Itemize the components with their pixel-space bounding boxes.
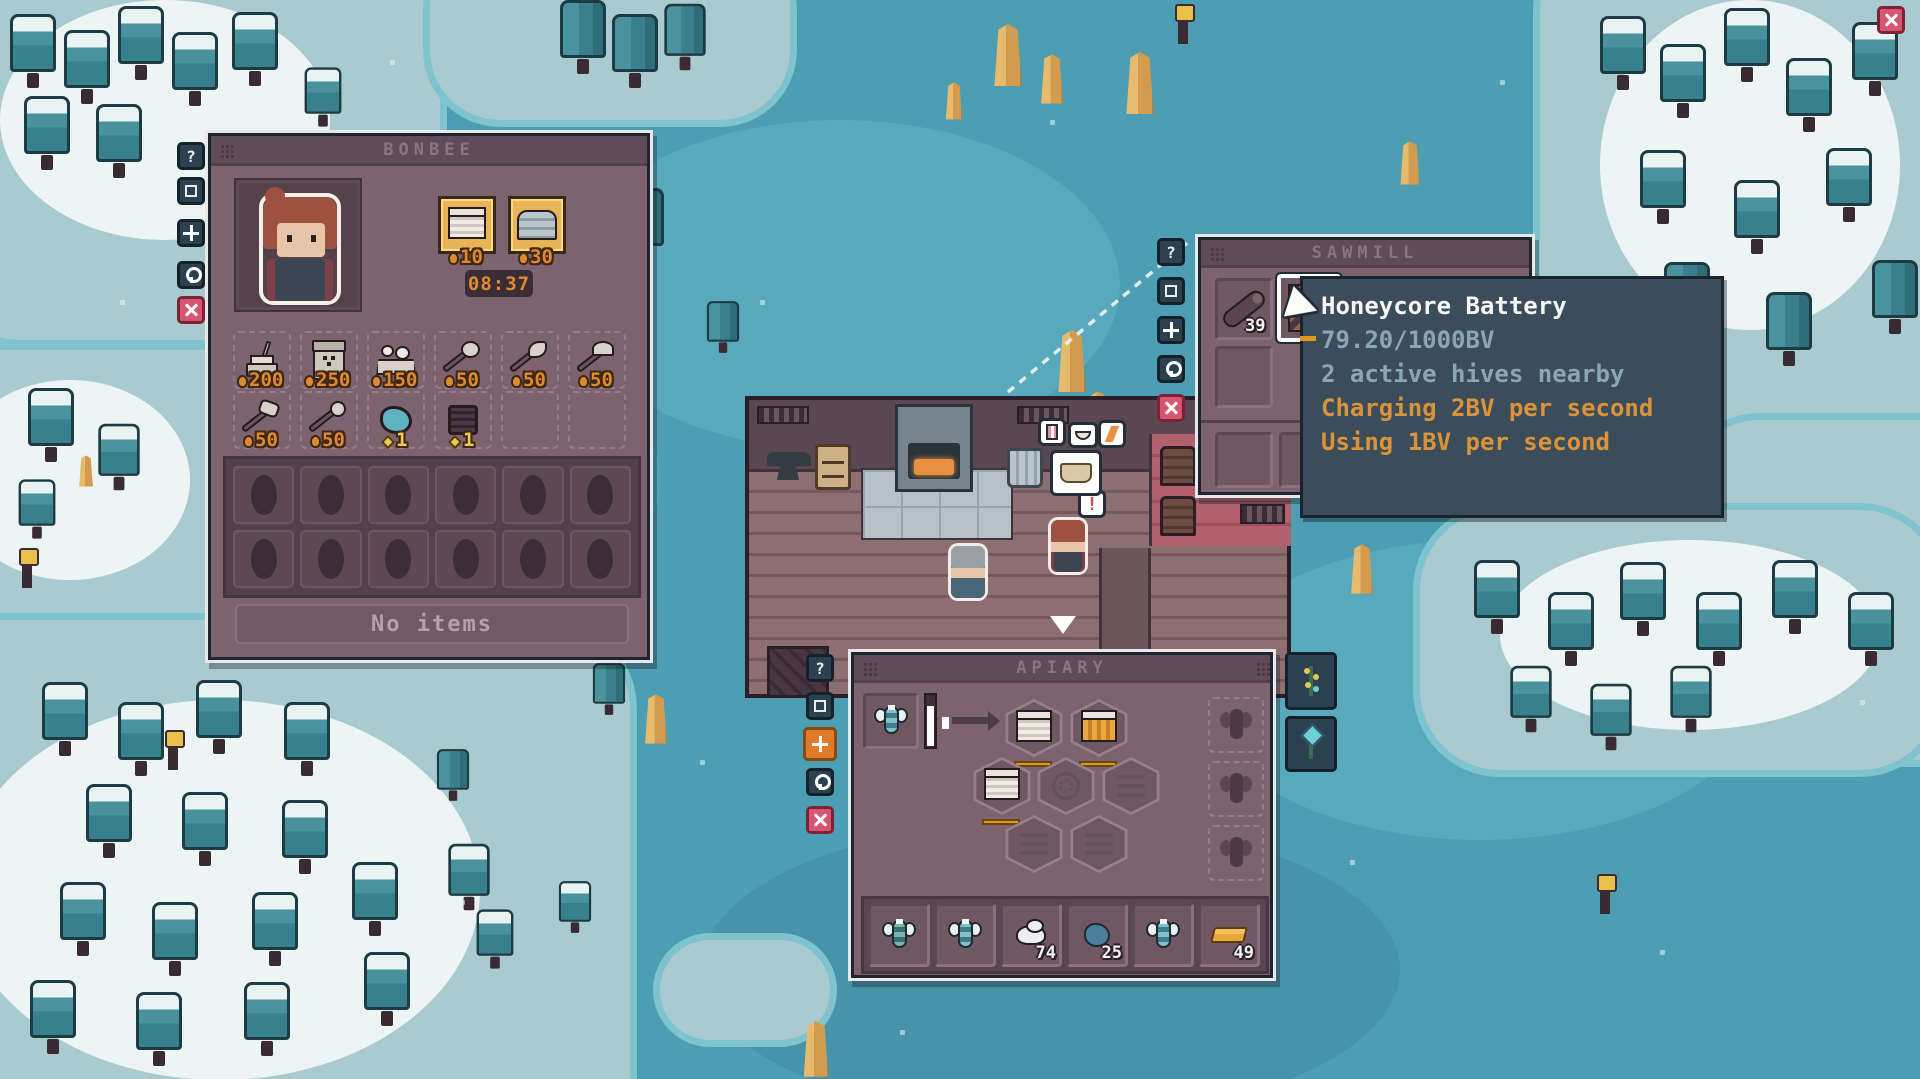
tree-trunk (1865, 651, 1877, 666)
bee-storage-slot[interactable] (233, 466, 294, 524)
tree-trunk (27, 73, 39, 88)
tree-crown (284, 702, 330, 760)
help-icon: ? (186, 147, 196, 166)
tree-trunk (605, 704, 613, 715)
apiary-resize-button[interactable] (806, 692, 834, 720)
tree-trunk (1789, 619, 1801, 634)
player-move-button[interactable] (177, 219, 205, 247)
shop-item-hammer[interactable]: 50 (233, 391, 291, 449)
move-icon (1163, 322, 1179, 338)
player-panel-title: BONBEE (383, 140, 474, 160)
tree-crown (60, 882, 106, 940)
progress-tick (942, 717, 949, 729)
tree-trunk (261, 1041, 273, 1056)
tree (118, 6, 164, 80)
tree-crown (448, 844, 489, 896)
tree-trunk (59, 741, 71, 756)
sawmill-close-button[interactable] (1157, 394, 1185, 422)
tree-crown (1872, 260, 1918, 318)
tree-crown (612, 14, 658, 72)
sawmill-help-button[interactable]: ? (1157, 238, 1185, 266)
tree-trunk (1889, 319, 1901, 334)
item-price: 50 (444, 369, 479, 391)
move-icon (183, 225, 199, 241)
resize-icon (814, 700, 826, 712)
tree (664, 4, 705, 71)
product-slot-ingot[interactable]: 49 (1198, 903, 1260, 967)
tree-crown (196, 680, 242, 738)
wall-vent (1240, 504, 1285, 524)
empty-bee-shape (587, 539, 613, 579)
pin-icon (185, 267, 197, 283)
npc-body (951, 578, 985, 598)
tree-trunk (1526, 719, 1537, 733)
tree-crown (182, 792, 228, 850)
tooltip-charging: Charging 2BV per second (1321, 391, 1657, 425)
tree (437, 749, 469, 801)
tree-trunk (680, 57, 691, 71)
hive-frame-icon (448, 211, 486, 239)
land-island (660, 940, 830, 1040)
sawmill-move-button[interactable] (1157, 316, 1185, 344)
shop-item-churn[interactable]: 200 (233, 331, 291, 389)
tree (1826, 148, 1872, 222)
grey-jug (1007, 448, 1043, 488)
shop-item-canister[interactable]: 250 (300, 331, 358, 389)
arrow-head (988, 711, 1000, 731)
apiary-help-button[interactable]: ? (806, 654, 834, 682)
game-screen: ! BONBEE (0, 0, 1920, 1079)
close-icon (1164, 401, 1178, 415)
queen-bee-icon (874, 704, 908, 738)
beehive (1160, 496, 1196, 536)
apiary-move-button-active[interactable] (803, 727, 837, 761)
tree-trunk (719, 342, 727, 353)
tree-trunk (1741, 67, 1753, 82)
product-count: 25 (1102, 943, 1122, 963)
tree-crown (232, 12, 278, 70)
tree-trunk (301, 761, 313, 776)
bee-storage-slot[interactable] (570, 466, 631, 524)
rock-spire (1036, 54, 1068, 104)
bee-storage-slot[interactable] (502, 466, 563, 524)
item-price: 50 (310, 429, 345, 451)
empty-bee-shape (453, 475, 479, 515)
bee-storage-slot[interactable] (368, 530, 429, 588)
lantern (168, 742, 178, 770)
tree-trunk (369, 921, 381, 936)
tree (1786, 58, 1832, 132)
tree-trunk (1617, 75, 1629, 90)
queen-bee-icon (1146, 918, 1180, 952)
tree (252, 892, 298, 966)
shop-item-empty[interactable] (568, 391, 626, 449)
tree-trunk (1843, 207, 1855, 222)
tree (448, 844, 489, 911)
apiary-bee-slot[interactable] (1208, 697, 1264, 753)
tree (1848, 592, 1894, 666)
no-items-bar: No items (235, 604, 629, 644)
anvil (767, 452, 811, 466)
tree-trunk (1657, 209, 1669, 224)
tree-crown (64, 30, 110, 88)
apiary-title-bar: APIARY (854, 655, 1270, 683)
close-icon (813, 813, 827, 827)
sawmill-output-slot[interactable] (1215, 432, 1273, 488)
item-price: 50 (243, 429, 278, 451)
tree-trunk (449, 790, 457, 801)
tree (118, 702, 164, 776)
tree-crown (1590, 684, 1631, 736)
tree-crown (244, 982, 290, 1040)
tree-trunk (1565, 651, 1577, 666)
sawmill-title-bar: SAWMILL (1201, 240, 1529, 268)
product-count: 74 (1036, 943, 1056, 963)
sparkle (900, 1030, 905, 1035)
shop-item-egg-crate[interactable]: 150 (367, 331, 425, 389)
rock-spire (942, 82, 966, 119)
tree-crown (1600, 16, 1646, 74)
sparkle (1720, 560, 1725, 565)
tree-trunk (47, 1039, 59, 1054)
tree-crown (1640, 150, 1686, 208)
sparkle (1860, 700, 1865, 705)
tree-trunk (629, 73, 641, 88)
bee-storage-slot[interactable] (570, 530, 631, 588)
tree-crown (152, 902, 198, 960)
tree-crown (172, 32, 218, 90)
tree (30, 980, 76, 1054)
apiary-plant-button[interactable] (1285, 652, 1337, 710)
tree-trunk (114, 477, 125, 491)
tree-crown (477, 909, 514, 955)
tree (24, 96, 70, 170)
tree-crown (352, 862, 398, 920)
tree-crown (10, 14, 56, 72)
shop-item-net[interactable]: 1 (434, 391, 492, 449)
tree-crown (30, 980, 76, 1038)
tree-trunk (464, 897, 475, 911)
tree (10, 14, 56, 88)
tree-crown (42, 682, 88, 740)
tree-crown (1510, 666, 1551, 718)
tree (1600, 16, 1646, 90)
product-slot-bee[interactable] (868, 903, 930, 967)
bee-storage-slot[interactable] (502, 530, 563, 588)
full-frame-icon (1081, 714, 1117, 742)
tree-trunk (249, 71, 261, 86)
player-hair (1051, 520, 1085, 542)
tree-crown (593, 663, 625, 704)
speech-bubble-basket (1050, 450, 1102, 496)
bee-storage-slot[interactable] (300, 466, 361, 524)
apiary-bee-slot[interactable] (1208, 761, 1264, 817)
tree-crown (1474, 560, 1520, 618)
tree-crown (1696, 592, 1742, 650)
empty-bee-shape (251, 539, 277, 579)
tree-trunk (135, 65, 147, 80)
log-count: 39 (1245, 316, 1265, 336)
tree (172, 32, 218, 106)
title-dots (864, 663, 867, 666)
empty-bee-shape (318, 539, 344, 579)
tree-crown (1848, 592, 1894, 650)
lantern (1178, 16, 1188, 44)
sawmill-pin-button[interactable] (1157, 355, 1185, 383)
tree-crown (664, 4, 705, 56)
tree (1660, 44, 1706, 118)
tree (136, 992, 182, 1066)
tree-crown (118, 6, 164, 64)
list-icon (1020, 833, 1048, 855)
bee-silhouette-icon (1219, 771, 1253, 807)
title-dots (1211, 248, 1214, 251)
tree-trunk (113, 163, 125, 178)
tree (1696, 592, 1742, 666)
sparkle (760, 300, 765, 305)
player-help-button[interactable]: ? (177, 142, 205, 170)
tree (612, 14, 658, 88)
tree (1872, 260, 1918, 334)
tree-trunk (169, 961, 181, 976)
apiary-title: APIARY (1016, 658, 1107, 678)
empty-bee-shape (385, 539, 411, 579)
npc-face (951, 568, 985, 578)
wax-powder-icon (1016, 925, 1046, 945)
lantern (22, 560, 32, 588)
tree-crown (1766, 292, 1812, 350)
tree-trunk (318, 115, 328, 127)
pin-icon (1165, 361, 1177, 377)
tree-trunk (135, 761, 147, 776)
player-pin-button[interactable] (177, 261, 205, 289)
tree (707, 301, 739, 353)
basket-icon (1060, 463, 1092, 483)
tree-crown (86, 784, 132, 842)
player-inventory-panel: BONBEE 10 30 08:37 200 (208, 133, 650, 660)
screen-close-button[interactable] (1877, 6, 1905, 34)
tree-crown (28, 388, 74, 446)
tree-crown (305, 67, 342, 113)
tree (1620, 562, 1666, 636)
tree-crown (24, 96, 70, 154)
speech-bubble-bolt (1098, 420, 1126, 448)
coin-icon (448, 252, 459, 265)
player-close-button[interactable] (177, 296, 205, 324)
product-slot-bee[interactable] (934, 903, 996, 967)
tree-trunk (1686, 719, 1697, 733)
apiary-frame-slot-1[interactable] (1003, 699, 1065, 757)
sparkle (1660, 950, 1665, 955)
bee-storage-slot[interactable] (435, 530, 496, 588)
tree (232, 12, 278, 86)
tree-crown (98, 424, 139, 476)
bolt-icon (1105, 426, 1119, 442)
tree (60, 882, 106, 956)
npc-hair (951, 546, 985, 568)
tree-trunk (571, 922, 579, 933)
tree (86, 784, 132, 858)
apiary-bee-slot[interactable] (1208, 825, 1264, 881)
item-price: 50 (578, 369, 613, 391)
item-price: 250 (304, 369, 350, 391)
wall-vent (757, 406, 809, 424)
bee-storage-slot[interactable] (300, 530, 361, 588)
speech-bubble-carton (1038, 418, 1066, 446)
shop-item-blue-wax[interactable]: 1 (367, 391, 425, 449)
product-slot-powder[interactable]: 74 (1000, 903, 1062, 967)
sawmill-title: SAWMILL (1312, 243, 1419, 263)
tree-trunk (1783, 351, 1795, 366)
tree-trunk (213, 739, 225, 754)
tree-trunk (41, 155, 53, 170)
tree (1734, 180, 1780, 254)
apiary-queen-slot[interactable] (863, 693, 919, 749)
tree (1548, 592, 1594, 666)
portrait-eyes (287, 235, 292, 242)
tree-trunk (577, 59, 589, 74)
item-tooltip: Honeycore Battery 79.20/1000BV 2 active … (1300, 276, 1724, 518)
tree-crown (1772, 560, 1818, 618)
item-price: 50 (511, 369, 546, 391)
tree-trunk (269, 951, 281, 966)
tree-trunk (1751, 239, 1763, 254)
product-count: 49 (1234, 943, 1254, 963)
tree (1724, 8, 1770, 82)
tree-trunk (32, 527, 42, 539)
apiary-flower-button[interactable] (1285, 716, 1337, 772)
bee-storage-slot[interactable] (233, 530, 294, 588)
apiary-locked-slot (1068, 815, 1130, 873)
title-dots (1257, 663, 1260, 666)
bowl-icon (1075, 431, 1091, 440)
tree (64, 30, 110, 104)
player-resize-button[interactable] (177, 177, 205, 205)
tree (559, 881, 591, 933)
exclaim-icon: ! (1087, 494, 1098, 515)
tree-trunk (1637, 621, 1649, 636)
tree-trunk (299, 859, 311, 874)
sparkle (1790, 240, 1795, 245)
tree-trunk (1491, 619, 1503, 634)
resize-icon (185, 185, 197, 197)
drone-bee-icon (948, 918, 982, 952)
help-icon: ? (815, 659, 825, 678)
honeycomb-icon (1052, 772, 1080, 800)
tooltip-title: Honeycore Battery (1321, 289, 1703, 323)
land-mass (430, 0, 790, 120)
item-price: 150 (371, 369, 417, 391)
shop-item-trowel[interactable]: 50 (300, 391, 358, 449)
tree (152, 902, 198, 976)
sparkle (1050, 120, 1055, 125)
tree-crown (1548, 592, 1594, 650)
portrait-character (263, 197, 337, 301)
tree-crown (136, 992, 182, 1050)
speech-bubble-bowl (1068, 422, 1098, 448)
tree (19, 479, 56, 538)
portrait-face (277, 223, 325, 257)
empty-bee-shape (520, 475, 546, 515)
bee-storage-slot[interactable] (368, 466, 429, 524)
rock-spire (1120, 52, 1160, 114)
tree (96, 104, 142, 178)
featured-price-2: 30 (518, 246, 553, 268)
tree-crown (560, 0, 606, 58)
tree-trunk (153, 1051, 165, 1066)
tree (1766, 292, 1812, 366)
tree (182, 792, 228, 866)
tree-crown (1826, 148, 1872, 206)
player-panel-title-bar: BONBEE (211, 136, 647, 166)
metal-hive-icon (517, 210, 557, 240)
tree (593, 663, 625, 715)
tree-crown (19, 479, 56, 525)
shop-item-empty[interactable] (501, 391, 559, 449)
tooltip-using: Using 1BV per second (1321, 425, 1657, 459)
item-price: 200 (237, 369, 283, 391)
tree-crown (118, 702, 164, 760)
player-body (1051, 552, 1085, 572)
tree-crown (1724, 8, 1770, 66)
tree-trunk (189, 91, 201, 106)
tree (28, 388, 74, 462)
empty-bee-shape (251, 475, 277, 515)
product-slot-bee[interactable] (1132, 903, 1194, 967)
tree (560, 0, 606, 74)
empty-bee-shape (385, 475, 411, 515)
tree-crown (282, 800, 328, 858)
tree (1772, 560, 1818, 634)
empty-bee-shape (520, 539, 546, 579)
tree-trunk (1713, 651, 1725, 666)
npc-character (951, 546, 985, 598)
tree-trunk (1606, 737, 1617, 751)
tree (1670, 666, 1711, 733)
beehive (1160, 446, 1196, 486)
shop-item-spade[interactable]: 50 (434, 331, 492, 389)
apiary-pin-button[interactable] (806, 768, 834, 796)
item-price: 1 (383, 429, 407, 451)
tree-crown (252, 892, 298, 950)
shop-item-axe[interactable]: 50 (501, 331, 559, 389)
sparkle (460, 900, 465, 905)
sawmill-empty-slot[interactable] (1215, 346, 1273, 408)
list-icon (1117, 775, 1145, 797)
bee-storage-slot[interactable] (435, 466, 496, 524)
tree-crown (364, 952, 410, 1010)
tree (305, 67, 342, 126)
title-dots (221, 145, 224, 148)
apiary-frame-slot-2[interactable] (1068, 699, 1130, 757)
tooltip-charge: 79.20/1000BV (1321, 323, 1703, 357)
tree-crown (1670, 666, 1711, 718)
item-price: 1 (450, 429, 474, 451)
apiary-progress-bar (924, 693, 937, 749)
apiary-panel: APIARY (851, 652, 1273, 978)
help-icon: ? (1166, 243, 1176, 262)
apiary-close-button[interactable] (806, 806, 834, 834)
tree (244, 982, 290, 1056)
tree (196, 680, 242, 754)
tree-trunk (199, 851, 211, 866)
sawmill-resize-button[interactable] (1157, 277, 1185, 305)
product-slot-resin[interactable]: 25 (1066, 903, 1128, 967)
tree-trunk (1677, 103, 1689, 118)
tree (1590, 684, 1631, 751)
tree-trunk (81, 89, 93, 104)
shop-item-pickaxe[interactable]: 50 (568, 331, 626, 389)
